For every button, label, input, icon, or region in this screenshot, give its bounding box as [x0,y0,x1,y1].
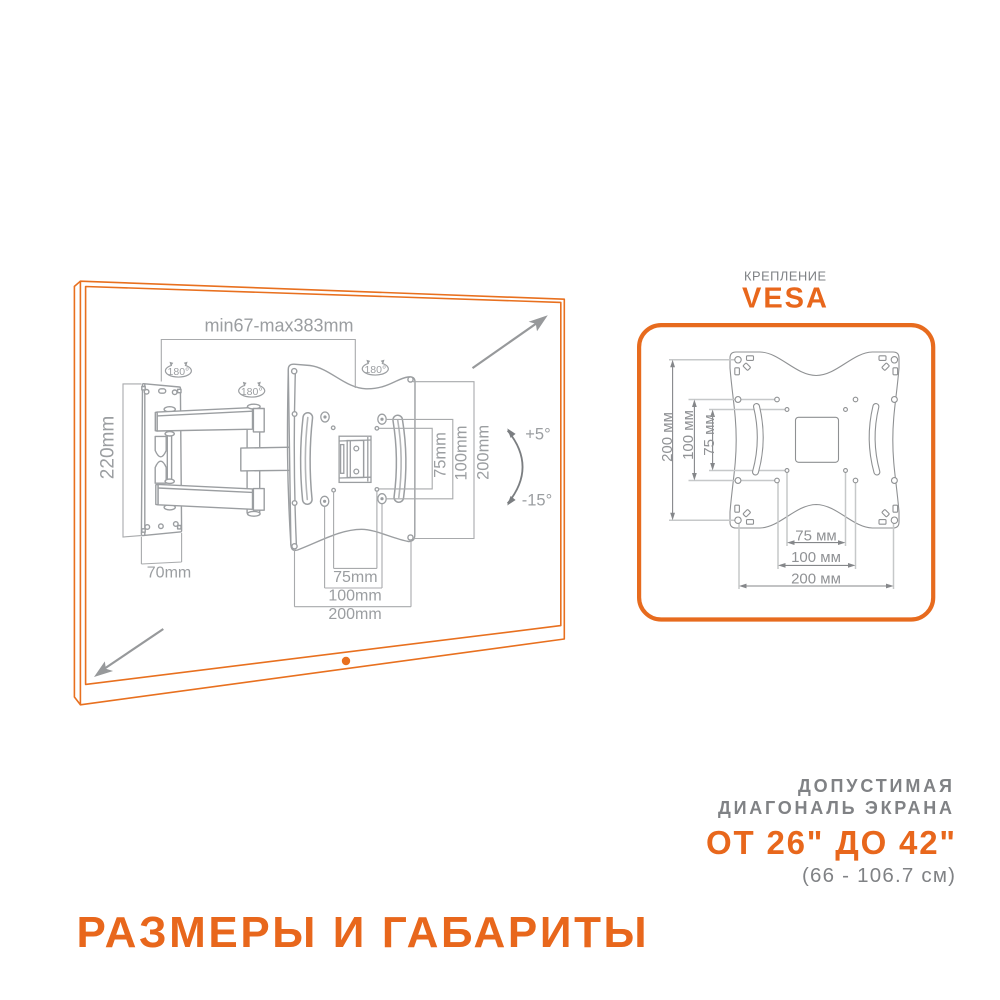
svg-text:70mm: 70mm [147,565,191,582]
svg-text:100mm: 100mm [328,588,381,605]
svg-text:75mm: 75mm [333,569,377,586]
svg-text:75 мм: 75 мм [701,414,718,455]
svg-text:-15°: -15° [522,492,552,510]
svg-text:ДИАГОНАЛЬ ЭКРАНА: ДИАГОНАЛЬ ЭКРАНА [718,798,955,818]
svg-text:200 мм: 200 мм [791,571,841,588]
svg-text:200mm: 200mm [474,425,492,480]
svg-text:100mm: 100mm [453,425,471,480]
svg-text:РАЗМЕРЫ И ГАБАРИТЫ: РАЗМЕРЫ И ГАБАРИТЫ [77,908,650,957]
svg-text:min67-max383mm: min67-max383mm [204,316,353,336]
svg-text:(66 - 106.7 см): (66 - 106.7 см) [802,864,956,887]
svg-text:ОТ 26" ДО 42": ОТ 26" ДО 42" [706,824,957,861]
svg-text:220mm: 220mm [98,416,119,479]
svg-text:75 мм: 75 мм [795,528,836,545]
svg-text:200mm: 200mm [328,606,381,623]
svg-text:VESA: VESA [742,282,829,314]
svg-text:200 мм: 200 мм [659,412,676,462]
svg-text:100 мм: 100 мм [791,549,841,566]
svg-text:КРЕПЛЕНИЕ: КРЕПЛЕНИЕ [744,268,827,283]
svg-text:ДОПУСТИМАЯ: ДОПУСТИМАЯ [798,776,955,796]
svg-text:100 мм: 100 мм [680,410,697,460]
svg-text:75mm: 75mm [432,432,450,478]
svg-text:+5°: +5° [525,426,550,444]
